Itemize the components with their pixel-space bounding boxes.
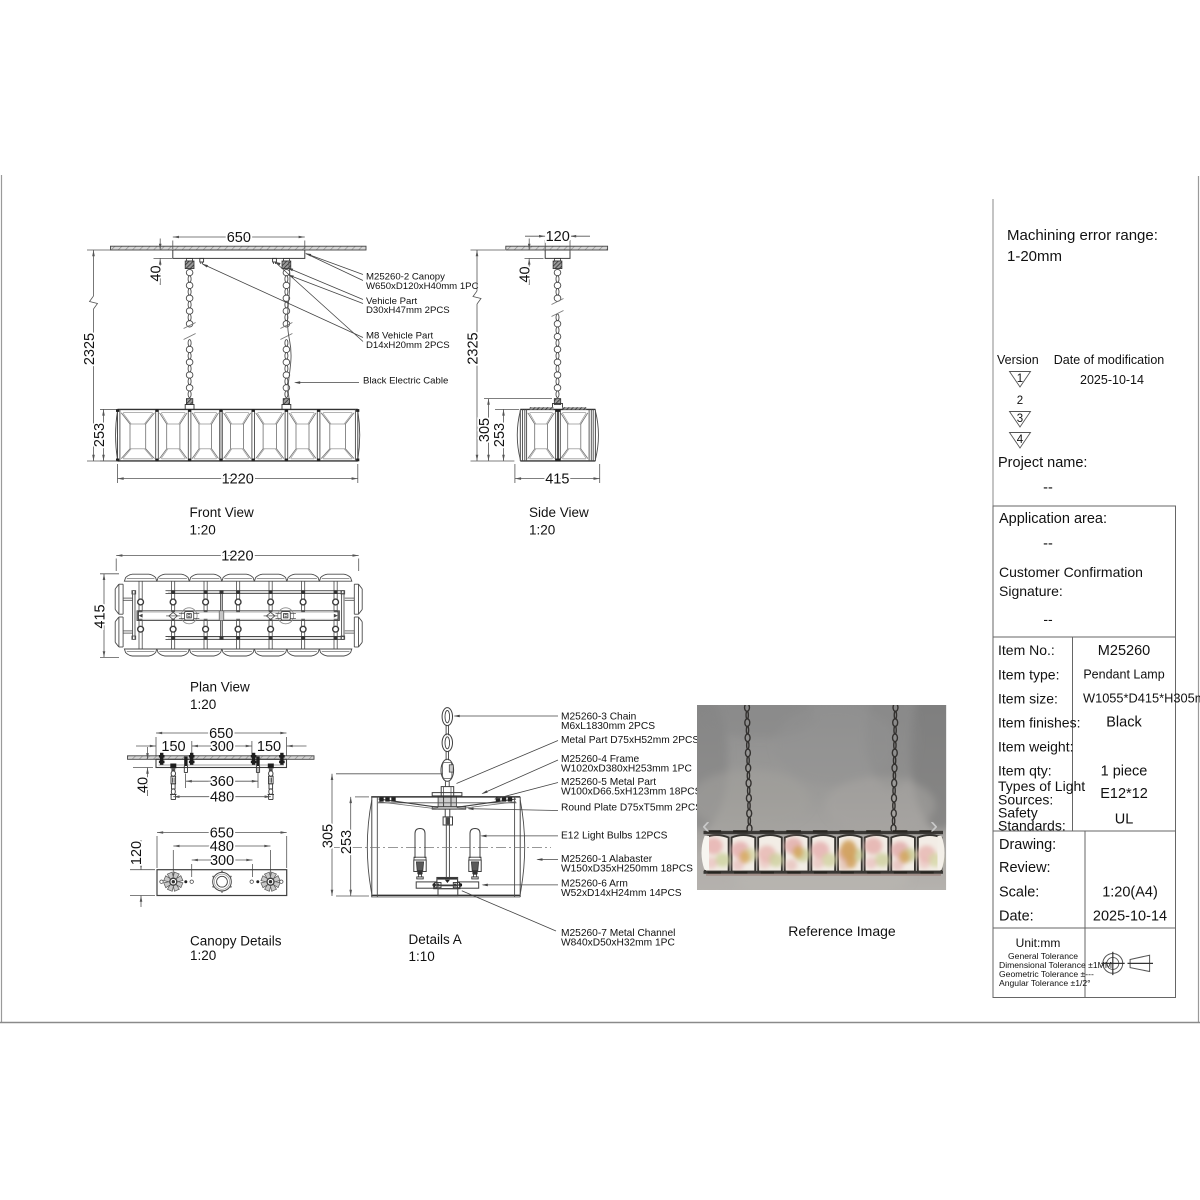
svg-text:D14xH20mm 2PCS: D14xH20mm 2PCS xyxy=(366,340,450,351)
svg-text:Application area:: Application area: xyxy=(999,511,1107,527)
svg-text:1:20: 1:20 xyxy=(190,697,216,712)
svg-text:‹: ‹ xyxy=(702,812,710,839)
svg-text:Machining error range:: Machining error range: xyxy=(1007,227,1158,244)
svg-text:1-20mm: 1-20mm xyxy=(1007,248,1062,265)
svg-text:Side View: Side View xyxy=(529,505,589,520)
svg-text:W1055*D415*H305mm: W1055*D415*H305mm xyxy=(1083,691,1200,706)
svg-text:--: -- xyxy=(1043,480,1053,496)
svg-text:Canopy Details: Canopy Details xyxy=(190,934,282,949)
svg-text:Black Electric Cable: Black Electric Cable xyxy=(363,376,448,387)
svg-text:Item weight:: Item weight: xyxy=(998,739,1073,755)
svg-text:1:10: 1:10 xyxy=(409,949,435,964)
svg-text:--: -- xyxy=(1043,536,1053,552)
svg-text:Signature:: Signature: xyxy=(999,583,1063,599)
svg-text:W840xD50xH32mm 1PC: W840xD50xH32mm 1PC xyxy=(561,938,675,949)
svg-text:360: 360 xyxy=(210,774,234,790)
svg-text:Reference Image: Reference Image xyxy=(788,923,896,939)
svg-text:1:20: 1:20 xyxy=(190,523,216,538)
svg-text:Angular Tolerance ±1/2°: Angular Tolerance ±1/2° xyxy=(999,978,1091,988)
svg-text:Plan View: Plan View xyxy=(190,680,250,695)
svg-text:1:20(A4): 1:20(A4) xyxy=(1102,885,1158,901)
svg-text:Customer Confirmation: Customer Confirmation xyxy=(999,564,1143,580)
svg-text:253: 253 xyxy=(92,423,108,447)
svg-text:Item type:: Item type: xyxy=(998,667,1059,683)
svg-text:Metal Part D75xH52mm 2PCS: Metal Part D75xH52mm 2PCS xyxy=(561,735,699,746)
svg-text:W100xD66.5xH123mm 18PCS: W100xD66.5xH123mm 18PCS xyxy=(561,786,702,797)
svg-text:150: 150 xyxy=(161,739,185,755)
svg-text:Unit:mm: Unit:mm xyxy=(1016,936,1061,950)
svg-text:UL: UL xyxy=(1115,812,1134,828)
svg-text:Date:: Date: xyxy=(999,909,1034,925)
svg-text:1 piece: 1 piece xyxy=(1101,764,1148,780)
svg-text:E12*12: E12*12 xyxy=(1100,786,1148,802)
svg-text:Details A: Details A xyxy=(409,932,462,947)
svg-text:300: 300 xyxy=(210,853,234,869)
svg-text:Version: Version xyxy=(997,353,1039,367)
svg-text:Black: Black xyxy=(1106,715,1142,731)
svg-text:120: 120 xyxy=(546,229,570,245)
svg-text:Item No.:: Item No.: xyxy=(998,642,1055,658)
svg-text:150: 150 xyxy=(257,739,281,755)
svg-text:40: 40 xyxy=(148,265,164,281)
svg-text:2025-10-14: 2025-10-14 xyxy=(1080,373,1144,387)
svg-text:Front View: Front View xyxy=(190,505,255,520)
svg-text:1: 1 xyxy=(1017,373,1023,385)
svg-text:W1020xD380xH253mm 1PC: W1020xD380xH253mm 1PC xyxy=(561,763,692,774)
svg-text:Date of modification: Date of modification xyxy=(1054,353,1165,367)
svg-text:1:20: 1:20 xyxy=(190,948,216,963)
svg-text:120: 120 xyxy=(129,841,145,865)
svg-text:305: 305 xyxy=(477,418,493,442)
svg-text:M25260: M25260 xyxy=(1098,643,1150,659)
svg-text:40: 40 xyxy=(517,266,533,282)
svg-text:4: 4 xyxy=(1017,434,1024,446)
svg-text:305: 305 xyxy=(321,824,337,848)
svg-text:W650xD120xH40mm 1PC: W650xD120xH40mm 1PC xyxy=(366,281,479,292)
svg-text:--: -- xyxy=(1043,611,1053,627)
svg-text:300: 300 xyxy=(210,739,234,755)
svg-text:Pendant Lamp: Pendant Lamp xyxy=(1083,668,1164,682)
svg-text:650: 650 xyxy=(227,230,251,246)
svg-text:3: 3 xyxy=(1017,413,1023,425)
svg-text:1:20: 1:20 xyxy=(529,523,555,538)
svg-text:2325: 2325 xyxy=(466,332,482,364)
svg-text:Drawing:: Drawing: xyxy=(999,837,1056,853)
svg-text:Item finishes:: Item finishes: xyxy=(998,715,1080,731)
svg-text:480: 480 xyxy=(210,790,234,806)
svg-text:Scale:: Scale: xyxy=(999,885,1039,901)
svg-text:Review:: Review: xyxy=(999,860,1051,876)
svg-text:40: 40 xyxy=(136,777,152,793)
svg-text:1220: 1220 xyxy=(221,549,253,565)
svg-text:253: 253 xyxy=(492,423,508,447)
svg-text:W52xD14xH24mm 14PCS: W52xD14xH24mm 14PCS xyxy=(561,888,682,899)
svg-text:Item qty:: Item qty: xyxy=(998,763,1052,779)
svg-text:E12 Light Bulbs 12PCS: E12 Light Bulbs 12PCS xyxy=(561,831,668,842)
svg-text:415: 415 xyxy=(545,472,569,488)
svg-text:M6xL1830mm 2PCS: M6xL1830mm 2PCS xyxy=(561,721,655,732)
svg-text:Item size:: Item size: xyxy=(998,691,1058,707)
svg-text:1220: 1220 xyxy=(222,472,254,488)
svg-text:415: 415 xyxy=(93,604,109,628)
svg-text:Project name:: Project name: xyxy=(998,455,1087,471)
svg-text:253: 253 xyxy=(339,830,355,854)
svg-text:2325: 2325 xyxy=(82,333,98,365)
svg-text:W150xD35xH250mm 18PCS: W150xD35xH250mm 18PCS xyxy=(561,864,693,875)
svg-text:D30xH47mm 2PCS: D30xH47mm 2PCS xyxy=(366,305,450,316)
svg-text:›: › xyxy=(930,812,938,839)
svg-text:2: 2 xyxy=(1017,395,1023,407)
svg-text:2025-10-14: 2025-10-14 xyxy=(1093,909,1167,925)
svg-text:Round Plate D75xT5mm 2PCS: Round Plate D75xT5mm 2PCS xyxy=(561,803,702,814)
